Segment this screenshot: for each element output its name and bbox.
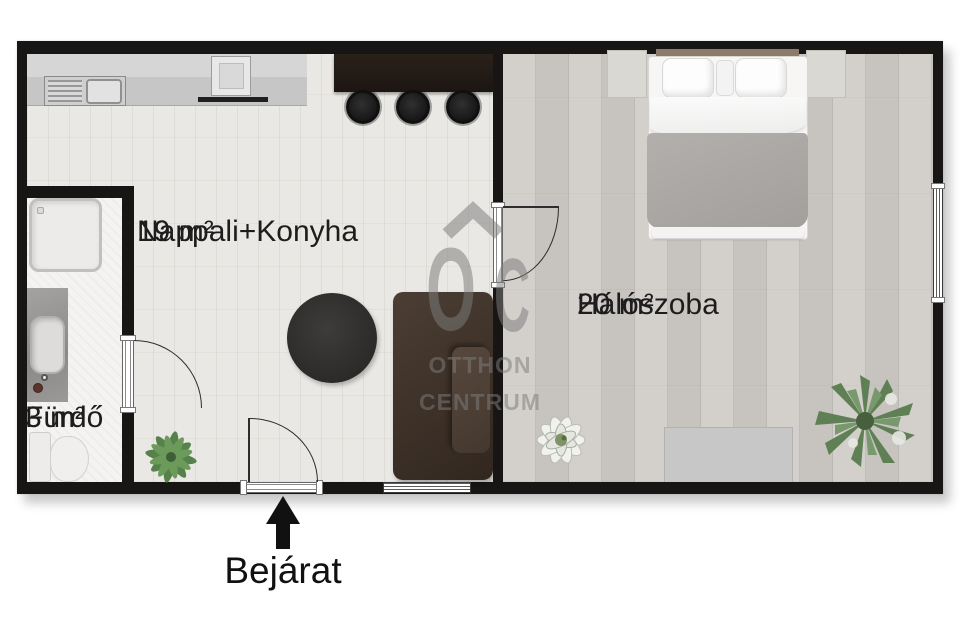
bed-foot-runner: [652, 227, 804, 238]
floor-plan-canvas: Nappali+Konyha 19 m² Hálószoba 20 m² Für…: [0, 0, 960, 621]
toilet-bowl: [50, 436, 89, 482]
bar-stool: [446, 90, 480, 124]
pillow-right: [735, 58, 787, 98]
bathroom-sink: [30, 316, 65, 374]
bar-counter: [334, 54, 493, 92]
bed-sheet-fold: [650, 97, 806, 137]
entrance-arrow-icon: [260, 495, 306, 551]
sink-drainer: [48, 80, 82, 102]
bedroom-door-leaf: [503, 206, 559, 208]
bed-blanket: [647, 133, 808, 228]
nightstand-right: [806, 50, 846, 98]
window-jamb: [931, 297, 945, 303]
bathroom-accessory: [41, 374, 48, 381]
sofa-cushion: [452, 347, 490, 453]
entrance-label: Bejárat: [203, 550, 363, 592]
bedroom-window: [933, 188, 943, 298]
door-jamb: [491, 282, 505, 288]
pillow-left: [662, 58, 714, 98]
stove-front-edge: [198, 97, 268, 102]
bar-stool: [396, 90, 430, 124]
entrance-doorway: [245, 482, 318, 493]
shower-drain: [37, 207, 44, 214]
dresser: [664, 427, 793, 482]
window-jamb: [931, 183, 945, 189]
sink-basin: [86, 79, 122, 104]
nightstand-left: [607, 50, 647, 98]
stove-top: [219, 63, 244, 89]
kitchen-counter-backsplash: [27, 54, 307, 77]
door-jamb: [316, 480, 323, 495]
bathroom-doorway: [122, 340, 134, 408]
bedroom-area: 20 m²: [577, 287, 654, 322]
entrance-door-leaf: [248, 418, 250, 482]
living-window: [383, 482, 471, 493]
door-jamb: [240, 480, 247, 495]
bathroom-area: 3 m²: [25, 400, 85, 435]
bedroom-doorway: [493, 207, 503, 283]
bathroom-accessory: [33, 383, 43, 393]
toilet-tank: [29, 432, 51, 482]
wall-bathroom-top: [27, 186, 134, 198]
round-rug: [287, 293, 377, 383]
living-room-area: 19 m²: [137, 214, 214, 249]
bar-stool: [346, 90, 380, 124]
pillow-center: [716, 60, 734, 96]
